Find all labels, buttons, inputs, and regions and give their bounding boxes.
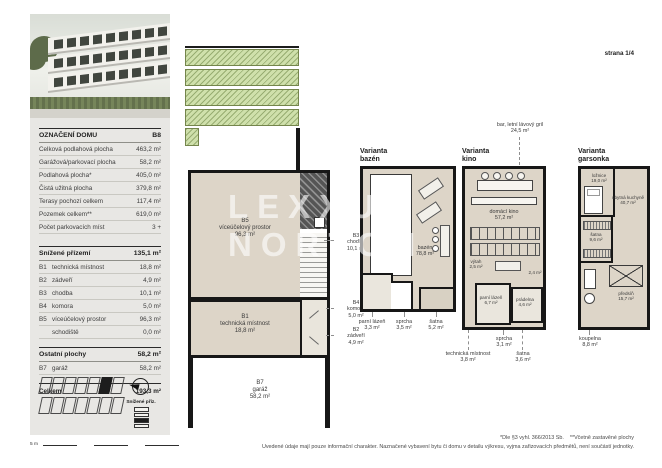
table-row: Celková podlahová plocha463,2 m²: [39, 143, 161, 156]
table-row: Podlahová plocha*405,0 m²: [39, 169, 161, 182]
leader-line: [589, 330, 590, 335]
row-value: 619,0 m²: [136, 211, 161, 218]
table-row: schodiště0,0 m²: [39, 326, 161, 339]
floor-rooms-table: Snížené přízemí 135,1 m² B1technická mís…: [39, 246, 161, 398]
scale-segment: [43, 445, 77, 446]
label-satna: šatna 3,6 m²: [506, 351, 540, 364]
section-area: 58,2 m²: [138, 351, 161, 358]
site-plan-row: [40, 377, 123, 394]
label-technicka-mistnost: technická místnost 3,8 m²: [436, 351, 500, 364]
label-bazen: bazén 78,8 m²: [399, 245, 451, 258]
label-sprcha: sprcha 3,5 m²: [388, 319, 420, 332]
sidebar: OZNAČENÍ DOMU B8 Celková podlahová ploch…: [30, 14, 170, 435]
room-code: B3: [39, 290, 52, 297]
house-id: B8: [152, 132, 161, 139]
row-label: Počet parkovacích míst: [39, 224, 104, 231]
room-name: schodiště: [52, 329, 79, 336]
row-value: 379,8 m²: [136, 185, 161, 192]
shower-room: [391, 281, 413, 309]
floorplan-page: OZNAČENÍ DOMU B8 Celková podlahová ploch…: [0, 0, 662, 468]
interior-wall: [581, 261, 613, 263]
scale-segment: [145, 445, 179, 446]
label-bar-gril: bar, letní lávový gril 24,5 m²: [470, 122, 570, 135]
compass-icon: [132, 378, 149, 395]
bed: [584, 186, 603, 214]
leader-line: [326, 308, 334, 309]
table-row: B1technická místnost18,8 m²: [39, 261, 161, 274]
site-unit: [110, 377, 125, 394]
scale-bar: 5 m: [30, 443, 196, 447]
property-boundary-line: [185, 46, 299, 48]
label-parni-lazen: parní lázeň 3,3 m²: [352, 319, 392, 332]
label-room-b7: B7 garáž 58,2 m²: [210, 380, 310, 401]
table-row: Pozemek celkem**619,0 m²: [39, 208, 161, 221]
leader-line: [326, 335, 334, 336]
dressing-room: [419, 287, 453, 309]
scale-segment: [94, 445, 128, 446]
label-domaci-kino: domácí kino 57,2 m²: [465, 209, 543, 222]
label-predsin: předsíň 15,7 m²: [605, 291, 647, 302]
furniture-crossed: [609, 265, 643, 287]
table-row: Garážová/parkovací plocha58,2 m²: [39, 156, 161, 169]
interior-wall: [611, 217, 613, 263]
stair-landing: [314, 217, 325, 228]
table-header-label: OZNAČENÍ DOMU: [39, 132, 97, 139]
table-row: B7garáž58,2 m²: [39, 362, 161, 375]
cinema-seat-row: [470, 227, 540, 240]
room-area: 96,3 m²: [140, 316, 161, 323]
variant-plan-garsonka: ložnice 19,0 m² obytná kuchyně 40,7 m² š…: [578, 166, 650, 330]
site-unit: [110, 397, 125, 414]
site-plan-block: Snížené příz.: [40, 377, 162, 423]
floor-level-badge: Snížené příz.: [126, 400, 156, 429]
room-area: 4,9 m²: [143, 277, 161, 284]
floor-level-icon: [134, 407, 149, 428]
floor-level-label: Snížené příz.: [126, 400, 155, 405]
table-subheader: Ostatní plochy 58,2 m²: [39, 347, 161, 362]
table-row: B3chodba10,1 m²: [39, 287, 161, 300]
garden-strip: [185, 109, 299, 126]
garden-small-patch: [185, 128, 199, 146]
row-label: Pozemek celkem**: [39, 211, 92, 218]
label-satna: šatna 5,2 m²: [420, 319, 452, 332]
garden-strip: [185, 49, 299, 66]
label-room-b1: B1 technická místnost 18,8 m²: [195, 314, 295, 335]
label-vytah: výtah 2,5 m²: [463, 259, 489, 270]
building-photo: [30, 14, 170, 118]
leader-line: [436, 312, 437, 317]
site-plan-row: [40, 397, 123, 414]
interior-wall: [613, 169, 615, 215]
room-code: B7: [39, 365, 52, 372]
staircase: [300, 170, 330, 300]
door-swing: [309, 310, 319, 318]
floor-area: 135,1 m²: [134, 250, 161, 257]
lounge-chair: [418, 177, 444, 200]
table-row: Terasy pochozí celkem117,4 m²: [39, 195, 161, 208]
leader-line: [503, 330, 504, 335]
room-area: 10,1 m²: [140, 290, 161, 297]
wardrobe: [583, 249, 611, 258]
table-row: Čistá užitná plocha379,8 m²: [39, 182, 161, 195]
row-value: 405,0 m²: [136, 172, 161, 179]
row-value: 3 +: [152, 224, 161, 231]
label-parni-lazen: parní lázeň 6,7 m²: [475, 295, 507, 306]
toilet: [584, 293, 595, 304]
room-area: 58,2 m²: [140, 365, 161, 372]
room-name: technická místnost: [52, 264, 104, 271]
room-name: víceúčelový prostor: [52, 316, 106, 323]
label-satna: šatna 9,6 m²: [583, 232, 609, 243]
wardrobe: [583, 221, 611, 230]
row-label: Celková podlahová plocha: [39, 146, 113, 153]
leader-line: [522, 330, 523, 350]
footnote-references: *Dle §3 vyhl. 366/2013 Sb. **Včetně zast…: [500, 435, 634, 441]
leader-line: [468, 330, 469, 350]
bar-stool: [493, 172, 501, 180]
label-sprcha: sprcha 3,1 m²: [486, 336, 522, 349]
stool: [432, 227, 439, 234]
label-pradelna: prádelna 4,6 m²: [511, 297, 539, 308]
wall-stub: [296, 128, 300, 172]
variant-plan-bazen: bazén 78,8 m²: [360, 166, 456, 312]
bar-stool: [481, 172, 489, 180]
garden-terraces: [185, 49, 299, 129]
room-area: 18,8 m²: [140, 264, 161, 271]
house-summary-table: OZNAČENÍ DOMU B8 Celková podlahová ploch…: [39, 128, 161, 234]
room-area: 0,0 m²: [143, 329, 161, 336]
photo-ground: [30, 109, 170, 118]
steam-room: [363, 273, 393, 309]
scale-label: 5 m: [30, 443, 38, 447]
bar-stool: [517, 172, 525, 180]
table-row: B5víceúčelový prostor96,3 m²: [39, 313, 161, 326]
leader-line: [372, 312, 373, 317]
table-row: B4komora5,0 m²: [39, 300, 161, 313]
photo-hedge: [30, 97, 170, 109]
table-row: B2zádveří4,9 m²: [39, 274, 161, 287]
room-code: B4: [39, 303, 52, 310]
row-label: Garážová/parkovací plocha: [39, 159, 116, 166]
sidebar-tables: OZNAČENÍ DOMU B8 Celková podlahová ploch…: [30, 128, 170, 398]
row-value: 58,2 m²: [140, 159, 161, 166]
page-number: strana 1/4: [560, 50, 634, 57]
leader-line: [324, 240, 334, 241]
room-name: zádveří: [52, 277, 73, 284]
label-room-b5: B5 víceúčelový prostor 96,3 m²: [195, 218, 295, 239]
disclaimer-text: Uvedené údaje mají pouze informační char…: [262, 444, 634, 450]
garden-strip: [185, 89, 299, 106]
row-value: 463,2 m²: [136, 146, 161, 153]
leader-line: [519, 137, 520, 165]
variant-title-kino: Varianta kino: [462, 148, 489, 164]
label-koupelna: koupelna 8,8 m²: [570, 336, 610, 349]
stool: [432, 236, 439, 243]
table-header: OZNAČENÍ DOMU B8: [39, 128, 161, 143]
bar-counter: [477, 180, 533, 191]
leader-line: [404, 312, 405, 317]
section-name: Ostatní plochy: [39, 351, 86, 358]
photo-house: [48, 23, 170, 98]
floor-name: Snížené přízemí: [39, 250, 90, 257]
cinema-screen: [471, 197, 537, 205]
sofa: [495, 261, 521, 271]
room-code: B5: [39, 316, 52, 323]
row-value: 117,4 m²: [137, 198, 161, 205]
interior-wall: [581, 215, 615, 217]
room-code: B2: [39, 277, 52, 284]
stair-treads: [300, 233, 327, 297]
pool: [370, 174, 412, 276]
room-area: 5,0 m²: [143, 303, 161, 310]
variant-title-garsonka: Varianta garsonka: [578, 148, 609, 164]
north-arrow-icon: [128, 382, 139, 390]
variant-plan-kino: domácí kino 57,2 m² výtah 2,5 m² parní l…: [462, 166, 546, 330]
room-name: chodba: [52, 290, 73, 297]
room-name: komora: [52, 303, 73, 310]
label-small-area: 2,4 m²: [523, 270, 547, 275]
room-code: B1: [39, 264, 52, 271]
variant-title-bazen: Varianta bazén: [360, 148, 387, 164]
table-header: Snížené přízemí 135,1 m²: [39, 246, 161, 261]
row-label: Čistá užitná plocha: [39, 185, 92, 192]
cinema-seat-row: [470, 243, 540, 256]
room-name: garáž: [52, 365, 68, 372]
row-label: Terasy pochozí celkem: [39, 198, 103, 205]
pillow: [587, 189, 600, 196]
row-label: Podlahová plocha*: [39, 172, 92, 179]
label-loznice: ložnice 19,0 m²: [581, 173, 617, 184]
table-row: Počet parkovacích míst3 +: [39, 221, 161, 234]
door-swing: [309, 336, 319, 344]
bathtub: [584, 269, 596, 289]
bar-stool: [505, 172, 513, 180]
label-obytna-kuchyne: obytná kuchyně 40,7 m²: [609, 195, 647, 206]
lounge-chair: [416, 201, 442, 224]
garden-strip: [185, 69, 299, 86]
